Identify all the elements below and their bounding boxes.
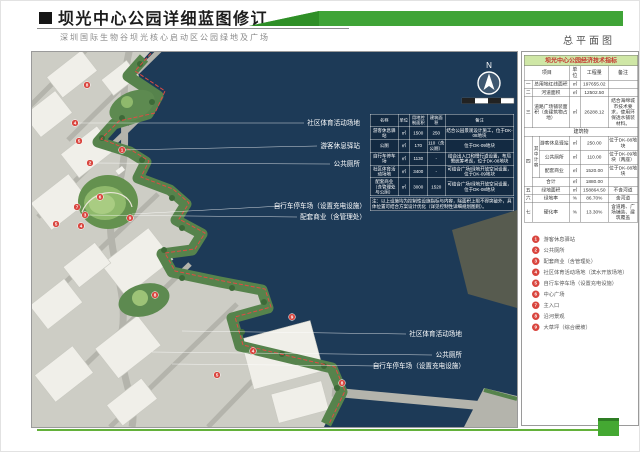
svg-text:4: 4 [252, 349, 255, 354]
overlay-header-row: 名称 单位 用地控制面积 建筑面积 备注 [370, 114, 514, 126]
cell-note: 含道路、广场铺装、建筑覆盖 [608, 203, 638, 223]
cell-label: 配套商业 [539, 164, 569, 178]
table-row: 一 总用地红线面积 ㎡ 197655.02 [524, 80, 638, 88]
table-row: 二 河道面积 ㎡ 12502.50 [524, 89, 638, 97]
svg-text:4: 4 [74, 121, 77, 126]
legend-number-badge: 1 [532, 235, 540, 243]
cell-unit: ㎡ [569, 164, 580, 178]
cell-unit: ㎡ [569, 150, 580, 164]
cell-note: 可结合广场/绿地开放空间设置，位于DK-08地块 [445, 178, 514, 196]
svg-text:9: 9 [291, 315, 294, 320]
table-row: 公共厕所 ㎡ 110.00 位于DK-09地块（两座） [524, 150, 638, 164]
compass-n-label: N [486, 61, 492, 70]
cell-area: 3400 [409, 165, 427, 178]
cell-note [608, 80, 638, 88]
col-build: 建筑面积 [427, 114, 445, 126]
legend-label: 自行车停车场（设置充电设施） [544, 279, 618, 287]
table-header-row: 项目 单位 工程量 备注 [524, 66, 638, 81]
legend-label: 配套商业（含管理处） [544, 257, 597, 265]
overlay-row: 游客休息驿站 ㎡ 1500 250 结合公园景观设计施工，位于DK-08地块 [370, 127, 514, 140]
map-label: 配套商业（含管理处） [300, 212, 366, 221]
table-row: 七 硬化率 % 13.30% 含道路、广场铺装、建筑覆盖 [524, 203, 638, 223]
svg-text:5: 5 [78, 139, 81, 144]
overlay-row: 公厕 ㎡ 170 110（含公厕） 位于DK-09地块 [370, 139, 514, 152]
table-row: 合计 ㎡ 1880.00 [524, 178, 638, 186]
svg-text:1: 1 [121, 148, 124, 153]
map-label: 社区体育活动场地 [307, 118, 360, 127]
marker: 4 [78, 223, 85, 230]
footer-green-line [37, 429, 599, 431]
marker: 8 [84, 82, 91, 89]
table-row: 三 道路广场铺装面积（含建筑物占地） ㎡ 26288.12 结合海绵城市技术要求… [524, 97, 638, 128]
legend-item: 4 社区体育活动场地（滨水开放场地） [532, 268, 638, 276]
col-area: 用地控制面积 [409, 114, 427, 126]
svg-text:8: 8 [341, 381, 344, 386]
legend-item: 8 沿河景观 [532, 312, 638, 320]
cell-area: 3000 [409, 178, 427, 196]
cell-qty: 1520.00 [580, 164, 608, 178]
cell-qty: 197655.02 [580, 80, 608, 88]
cell-label: 总用地红线面积 [532, 80, 569, 88]
legend-number-badge: 2 [532, 246, 540, 254]
legend-number-badge: 6 [532, 290, 540, 298]
legend-label: 中心广场 [544, 290, 565, 298]
cell-area: 1500 [409, 127, 427, 140]
page-title: 坝光中心公园详细蓝图修订 [58, 5, 268, 29]
cell-unit: ㎡ [398, 152, 409, 165]
cell-note [608, 89, 638, 97]
cell-qty: 110.00 [580, 150, 608, 164]
legend-number-badge: 9 [532, 323, 540, 331]
marker: 6 [97, 194, 104, 201]
cell-label: 道路广场铺装面积（含建筑物占地） [532, 97, 569, 128]
table-row: 四 其中计容 游客休息驿站 ㎡ 250.00 位于DK-08地块 [524, 136, 638, 150]
cell-name: 配套商业（含管理处与公厕） [370, 178, 398, 196]
cell-build: 1520 [427, 178, 445, 196]
legend-number-badge: 5 [532, 279, 540, 287]
cell-unit: ㎡ [569, 80, 580, 88]
legend-number-badge: 8 [532, 312, 540, 320]
cell-name: 游客休息驿站 [370, 127, 398, 140]
cell-note: 位于DK-09地块 [445, 139, 514, 152]
cell-note: 不含河道 [608, 186, 638, 194]
legend-item: 2 公共厕所 [532, 246, 638, 254]
cell-label: 游客休息驿站 [539, 136, 569, 150]
legend-item: 5 自行车停车场（设置充电设施） [532, 279, 638, 287]
map-label: 社区体育活动场地 [409, 329, 462, 338]
cell-build: - [427, 165, 445, 178]
cell-label: 合计 [532, 178, 569, 186]
svg-text:5: 5 [55, 222, 58, 227]
cell-no: 一 [524, 80, 532, 88]
legend-item: 3 配套商业（含管理处） [532, 257, 638, 265]
site-plan-drawing: 社区体育活动场地 游客休息驿站 公共厕所 自行车停车场（设置充电设施） 配套商业… [32, 52, 517, 427]
overlay-row: 自行车停车场 ㎡ 1130 - 结合出入口和慢行道设置，布局需统筹考虑，位于DK… [370, 152, 514, 165]
cell-note: 结合公园景观设计施工，位于DK-08地块 [445, 127, 514, 140]
cell-unit: ㎡ [398, 139, 409, 152]
cell-qty: 26288.12 [580, 97, 608, 128]
site-plan-map: 社区体育活动场地 游客休息驿站 公共厕所 自行车停车场（设置充电设施） 配套商业… [31, 51, 518, 428]
marker: 3 [82, 212, 89, 219]
svg-text:5: 5 [216, 373, 219, 378]
map-legend: 1 游客休息驿站 2 公共厕所 3 配套商业（含管理处） 4 社区体育活动场地（… [524, 235, 638, 331]
cell-no: 七 [524, 203, 532, 223]
cell-build: 110（含公厕） [427, 139, 445, 152]
cell-no: 三 [524, 97, 532, 128]
cell-no: 六 [524, 194, 532, 202]
cell-unit: ㎡ [569, 136, 580, 150]
marker: 5 [53, 221, 60, 228]
cell-unit: % [569, 203, 580, 223]
cell-unit: ㎡ [569, 89, 580, 97]
cell-qty: 13.30% [580, 203, 608, 223]
cell-no: 五 [524, 186, 532, 194]
marker: 4 [250, 348, 257, 355]
cell-note: 含河道 [608, 194, 638, 202]
marker: 9 [289, 314, 296, 321]
col-item: 项目 [524, 66, 569, 81]
marker: 8 [152, 292, 159, 299]
col-note: 备注 [445, 114, 514, 126]
cell-note: 位于DK-08地块 [608, 164, 638, 178]
cell-unit: ㎡ [398, 165, 409, 178]
blueprint-sheet: 坝光中心公园详细蓝图修订 深圳国际生物谷坝光核心启动区公园绿地及广场 总平面图 [0, 0, 640, 452]
cell-unit: ㎡ [569, 97, 580, 128]
legend-item: 7 主入口 [532, 301, 638, 309]
cell-name: 自行车停车场 [370, 152, 398, 165]
marker: 5 [76, 138, 83, 145]
cell-name: 社区体育活动场地 [370, 165, 398, 178]
cell-note [608, 178, 638, 186]
legend-number-badge: 7 [532, 301, 540, 309]
legend-item: 9 大草坪（综合缓坡） [532, 323, 638, 331]
legend-number-badge: 4 [532, 268, 540, 276]
cell-qty: 250.00 [580, 136, 608, 150]
cell-name: 公厕 [370, 139, 398, 152]
cell-label: 公共厕所 [539, 150, 569, 164]
economic-indicators-table: 坝光中心公园经济技术指标 项目 单位 工程量 备注 一 总用地红线面积 ㎡ 19… [524, 55, 638, 222]
title-block-icon [39, 12, 52, 24]
marker: 7 [74, 204, 81, 211]
sheet-name-label: 总平面图 [541, 32, 615, 47]
col-unit: 单位 [398, 114, 409, 126]
cell-unit: ㎡ [398, 127, 409, 140]
table-title: 坝光中心公园经济技术指标 [524, 55, 638, 66]
svg-text:7: 7 [76, 205, 79, 210]
marker: 9 [127, 215, 134, 222]
overlay-row: 配套商业（含管理处与公厕） ㎡ 3000 1520 可结合广场/绿地开放空间设置… [370, 178, 514, 196]
cell-qty: 158864.50 [580, 186, 608, 194]
col-name: 名称 [370, 114, 398, 126]
section-label: 建筑物 [524, 128, 638, 137]
footer-green-square [598, 418, 619, 436]
svg-text:4: 4 [80, 224, 83, 229]
cell-label: 绿地面积 [532, 186, 569, 194]
legend-label: 主入口 [544, 301, 560, 309]
scale-bar [462, 98, 514, 104]
legend-label: 公共厕所 [544, 246, 565, 254]
cell-note: 结合出入口和慢行道设置，布局需统筹考虑，位于DK-08地块 [445, 152, 514, 165]
marker: 1 [119, 147, 126, 154]
cell-label: 河道面积 [532, 89, 569, 97]
cell-note: 可结合广场/绿地开放空间设置，位于DK-09地块 [445, 165, 514, 178]
cell-no: 四 [524, 136, 532, 186]
cell-build: 250 [427, 127, 445, 140]
legend-label: 沿河景观 [544, 312, 565, 320]
col-unit: 单位 [569, 66, 580, 81]
info-sidebar: 坝光中心公园经济技术指标 项目 单位 工程量 备注 一 总用地红线面积 ㎡ 19… [521, 51, 639, 426]
map-label: 自行车停车场（设置充电设施） [274, 201, 366, 210]
map-label: 游客休息驿站 [320, 141, 360, 150]
cell-build: - [427, 152, 445, 165]
legend-label: 大草坪（综合缓坡） [544, 323, 591, 331]
svg-text:9: 9 [129, 216, 132, 221]
col-qty: 工程量 [580, 66, 608, 81]
legend-label: 游客休息驿站 [544, 235, 576, 243]
svg-text:6: 6 [99, 195, 102, 200]
cell-group: 其中计容 [532, 136, 539, 178]
overlay-table-note: 注：以上设施均为控制性设施指标与内容，除面积上限不得突破外，具体位置可结合方案设… [370, 197, 514, 211]
table-row: 六 绿地率 % 86.70% 含河道 [524, 194, 638, 202]
table-row: 配套商业 ㎡ 1520.00 位于DK-08地块 [524, 164, 638, 178]
cell-unit: % [569, 194, 580, 202]
table-section-row: 建筑物 [524, 128, 638, 137]
cell-note: 位于DK-08地块 [608, 136, 638, 150]
cell-label: 硬化率 [532, 203, 569, 223]
svg-text:2: 2 [89, 161, 92, 166]
cell-area: 1130 [409, 152, 427, 165]
marker: 5 [214, 372, 221, 379]
cell-unit: ㎡ [398, 178, 409, 196]
map-label: 公共厕所 [436, 350, 463, 359]
marker: 4 [72, 120, 79, 127]
cell-no: 二 [524, 89, 532, 97]
map-label: 公共厕所 [334, 159, 361, 168]
cell-area: 170 [409, 139, 427, 152]
legend-item: 1 游客休息驿站 [532, 235, 638, 243]
cell-note: 结合海绵城市技术要求，使用环保透水铺装材料。 [608, 97, 638, 128]
legend-item: 6 中心广场 [532, 290, 638, 298]
cell-label: 绿地率 [532, 194, 569, 202]
legend-label: 社区体育活动场地（滨水开放场地） [544, 268, 628, 276]
map-label: 自行车停车场（设置充电设施） [373, 361, 465, 370]
cell-note: 位于DK-09地块（两座） [608, 150, 638, 164]
cell-unit: ㎡ [569, 178, 580, 186]
cell-unit: ㎡ [569, 186, 580, 194]
cell-qty: 86.70% [580, 194, 608, 202]
svg-text:8: 8 [86, 83, 89, 88]
marker: 2 [87, 160, 94, 167]
legend-number-badge: 3 [532, 257, 540, 265]
table-row: 五 绿地面积 ㎡ 158864.50 不含河道 [524, 186, 638, 194]
green-ribbon [249, 7, 623, 29]
cell-qty: 1880.00 [580, 178, 608, 186]
col-note: 备注 [608, 66, 638, 81]
page-subtitle: 深圳国际生物谷坝光核心启动区公园绿地及广场 [60, 32, 270, 43]
marker: 8 [339, 380, 346, 387]
svg-text:8: 8 [154, 293, 157, 298]
overlay-row: 社区体育活动场地 ㎡ 3400 - 可结合广场/绿地开放空间设置，位于DK-09… [370, 165, 514, 178]
svg-text:3: 3 [84, 213, 87, 218]
cell-qty: 12502.50 [580, 89, 608, 97]
facilities-overlay-table: 名称 单位 用地控制面积 建筑面积 备注 游客休息驿站 ㎡ 1500 250 结… [370, 114, 514, 211]
